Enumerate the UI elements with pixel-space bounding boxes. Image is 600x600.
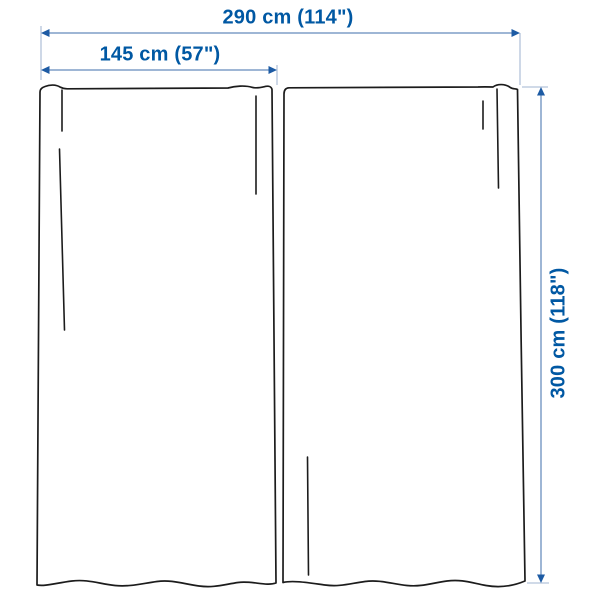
arrow-down-icon bbox=[537, 575, 545, 584]
curtain-dimension-diagram: 290 cm (114") 145 cm (57") 300 cm (118") bbox=[0, 0, 600, 600]
arrow-left-icon bbox=[41, 66, 50, 74]
arrow-left-icon bbox=[41, 29, 50, 37]
right-curtain-panel bbox=[283, 85, 525, 587]
arrow-right-icon bbox=[269, 66, 278, 74]
panel-height-label: 300 cm (118") bbox=[548, 267, 571, 398]
diagram-drawing bbox=[0, 0, 600, 600]
arrow-up-icon bbox=[537, 87, 545, 96]
panel-width-label: 145 cm (57") bbox=[100, 44, 221, 67]
left-curtain-panel bbox=[37, 85, 276, 587]
arrow-right-icon bbox=[512, 29, 521, 37]
total-width-label: 290 cm (114") bbox=[222, 7, 353, 30]
fold-line bbox=[308, 457, 309, 575]
